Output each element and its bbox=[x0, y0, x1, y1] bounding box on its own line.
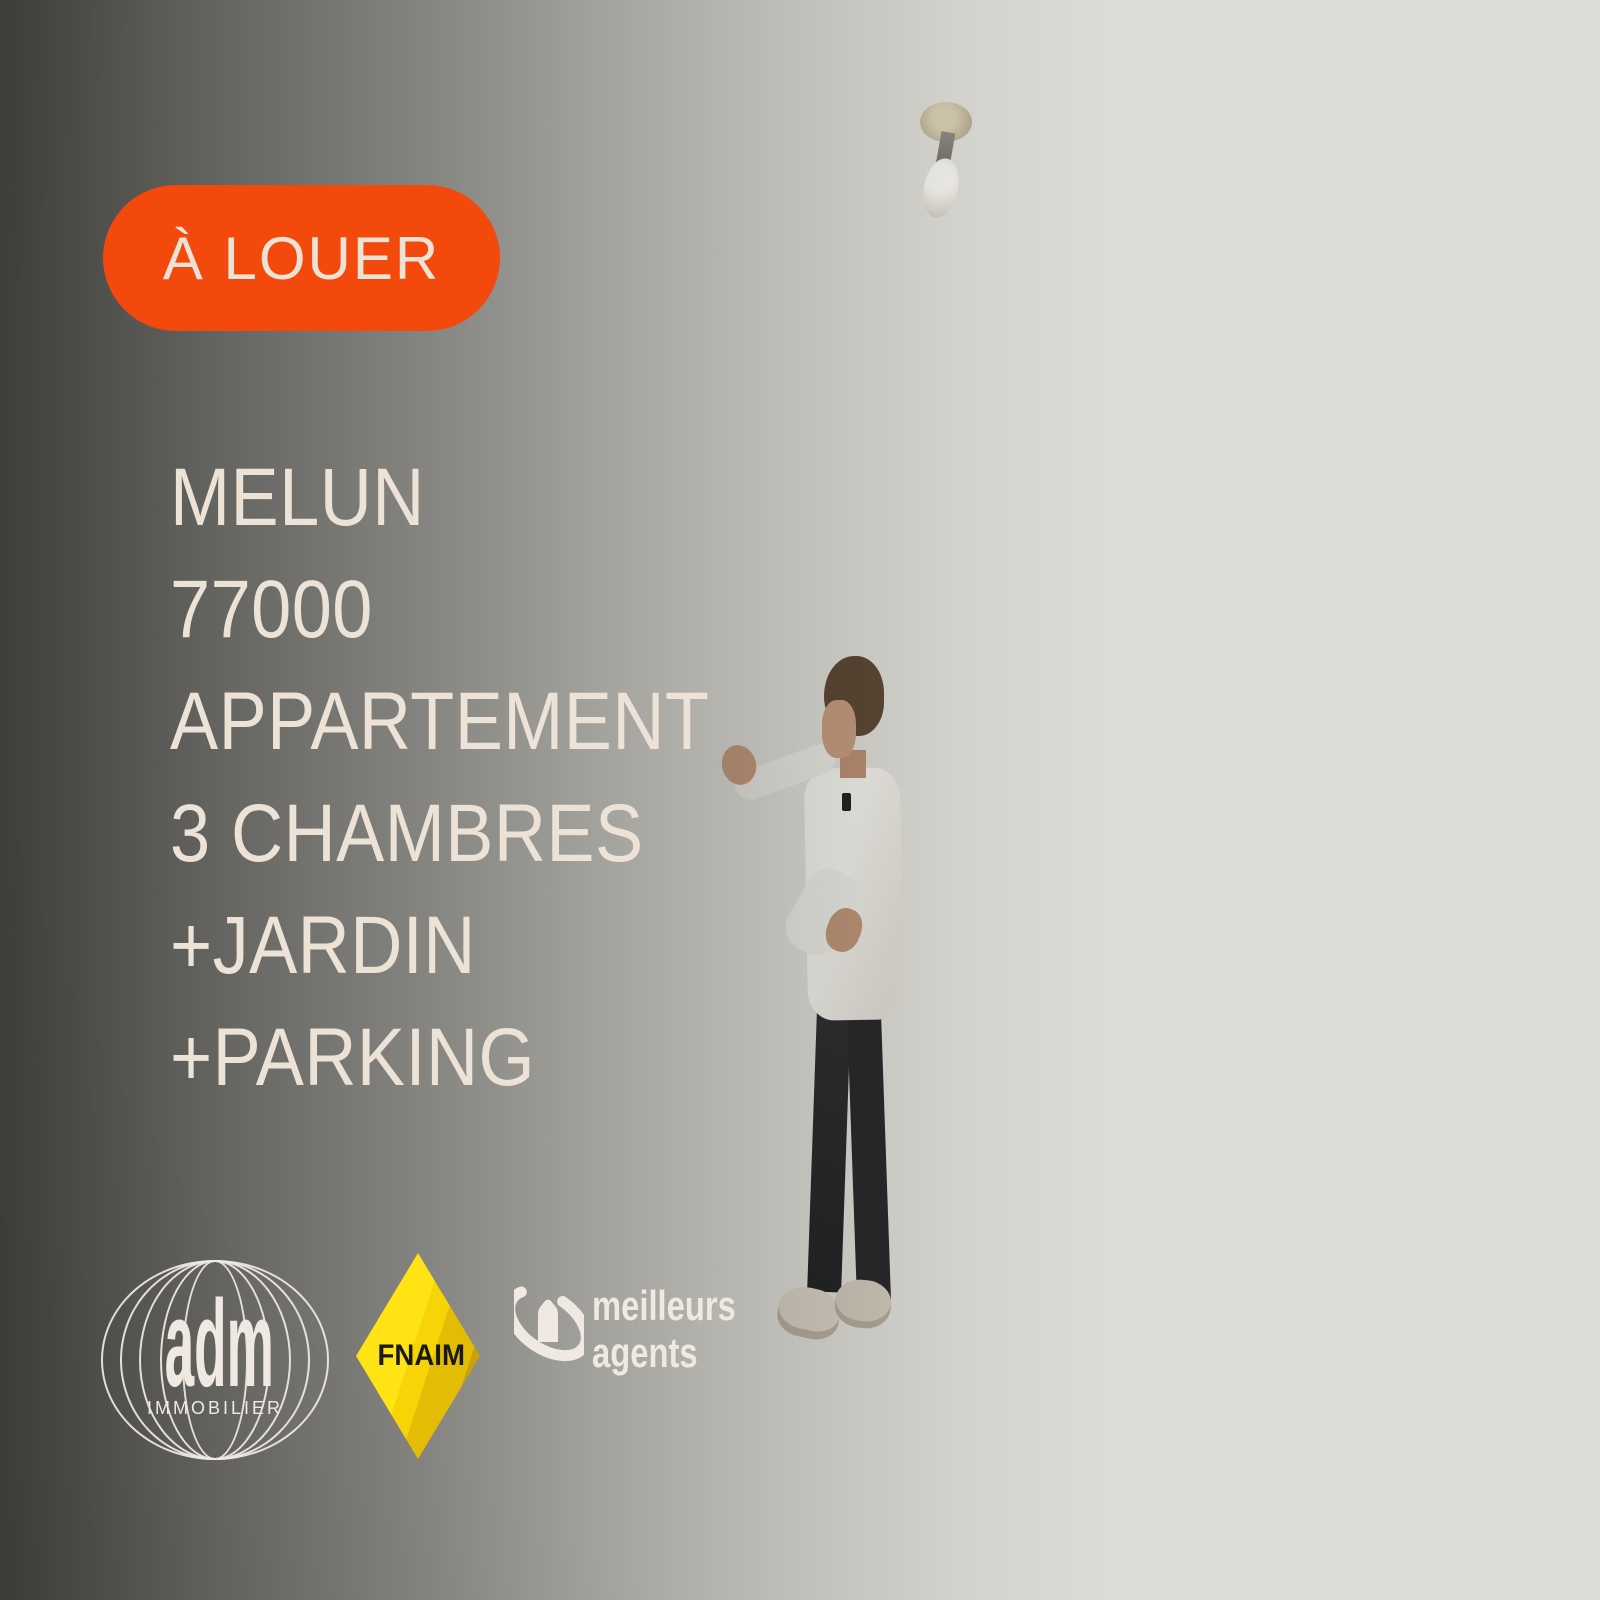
meilleurs-agents-house-icon bbox=[514, 1272, 584, 1376]
listing-headline: MELUN 77000 APPARTEMENT 3 CHAMBRES +JARD… bbox=[170, 442, 783, 1114]
headline-zipcode: 77000 bbox=[170, 554, 709, 666]
headline-garden: +JARDIN bbox=[170, 890, 709, 1002]
headline-property-type: APPARTEMENT bbox=[170, 666, 709, 778]
adm-wordmark: adm bbox=[165, 1282, 266, 1406]
meilleurs-agents-line1: meilleurs bbox=[592, 1282, 736, 1329]
for-rent-badge: À LOUER bbox=[103, 185, 500, 331]
headline-city: MELUN bbox=[170, 442, 709, 554]
adm-immobilier-logo: adm IMMOBILIER bbox=[103, 1258, 327, 1458]
meilleurs-agents-wordmark: meilleurs agents bbox=[592, 1282, 776, 1376]
meilleurs-agents-line2: agents bbox=[592, 1329, 736, 1376]
listing-cover-image: À LOUER MELUN 77000 APPARTEMENT 3 CHAMBR… bbox=[0, 0, 1600, 1600]
adm-subtitle: IMMOBILIER bbox=[103, 1398, 327, 1419]
fnaim-label: FNAIM bbox=[372, 1339, 465, 1373]
for-rent-badge-label: À LOUER bbox=[163, 224, 440, 293]
headline-bedrooms: 3 CHAMBRES bbox=[170, 778, 709, 890]
headline-parking: +PARKING bbox=[170, 1002, 709, 1114]
